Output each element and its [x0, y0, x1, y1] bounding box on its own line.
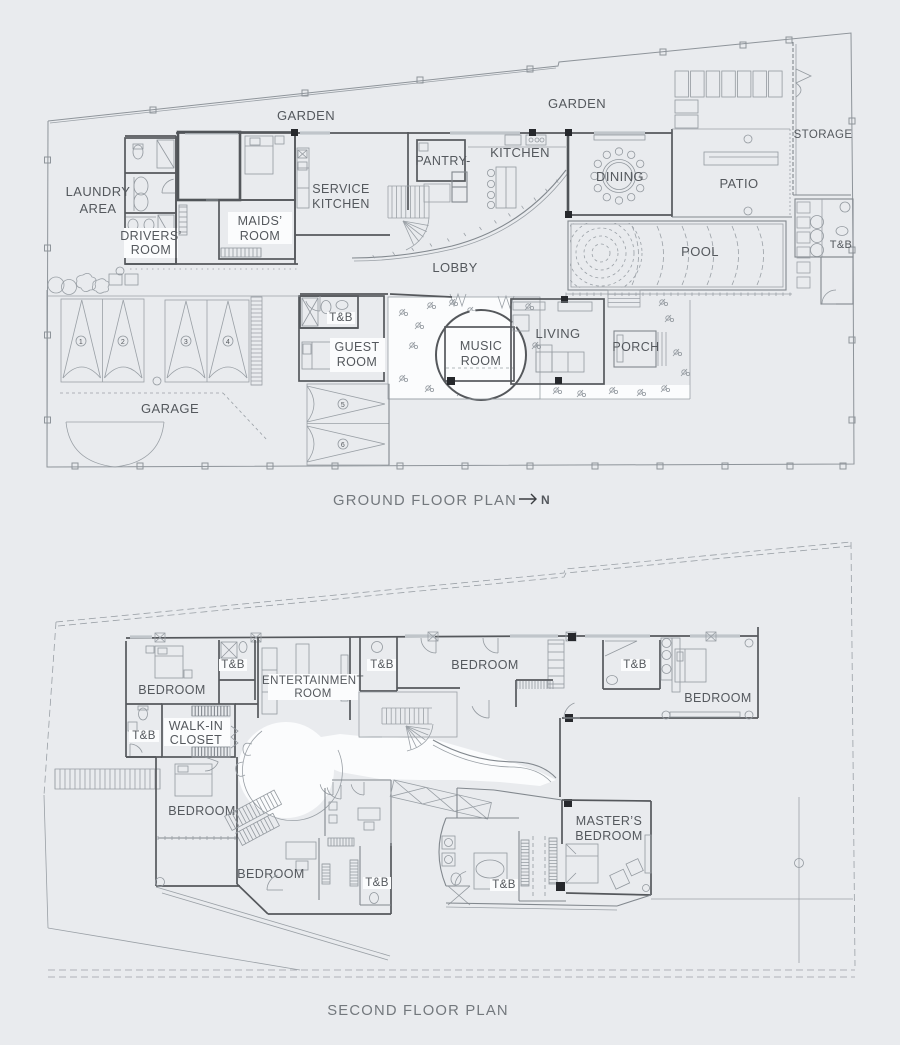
svg-text:CLOSET: CLOSET: [170, 733, 222, 747]
svg-text:WALK-IN: WALK-IN: [169, 719, 223, 733]
svg-text:6: 6: [341, 442, 345, 449]
svg-text:LIVING: LIVING: [535, 326, 580, 341]
svg-text:MUSIC: MUSIC: [460, 339, 502, 353]
svg-text:PATIO: PATIO: [719, 176, 758, 191]
svg-text:T&B: T&B: [221, 659, 245, 671]
svg-text:AREA: AREA: [79, 201, 116, 216]
svg-text:4: 4: [226, 339, 230, 346]
svg-text:3: 3: [184, 339, 188, 346]
svg-text:DRIVERS’: DRIVERS’: [120, 229, 182, 243]
svg-text:GARAGE: GARAGE: [141, 401, 199, 416]
svg-text:BEDROOM: BEDROOM: [138, 683, 205, 697]
svg-text:PORCH: PORCH: [612, 340, 659, 354]
svg-text:SERVICE: SERVICE: [312, 182, 369, 196]
svg-text:T&B: T&B: [132, 730, 156, 742]
svg-text:5: 5: [341, 402, 345, 409]
svg-text:MAIDS’: MAIDS’: [238, 214, 283, 228]
svg-text:N: N: [541, 493, 550, 507]
svg-text:LOBBY: LOBBY: [432, 260, 477, 275]
svg-text:ROOM: ROOM: [337, 355, 378, 369]
svg-text:ROOM: ROOM: [240, 229, 281, 243]
svg-text:1: 1: [79, 339, 83, 346]
svg-text:ROOM: ROOM: [131, 243, 172, 257]
svg-text:POOL: POOL: [681, 244, 719, 259]
svg-text:T&B: T&B: [623, 659, 647, 671]
svg-text:T&B: T&B: [830, 239, 853, 251]
svg-text:GARDEN: GARDEN: [548, 96, 606, 111]
svg-text:T&B: T&B: [492, 879, 516, 891]
svg-text:T&B: T&B: [329, 312, 353, 324]
svg-text:STORAGE: STORAGE: [794, 129, 853, 141]
svg-text:BEDROOM: BEDROOM: [451, 658, 518, 672]
svg-text:2: 2: [121, 339, 125, 346]
svg-text:KITCHEN: KITCHEN: [312, 197, 370, 211]
svg-text:LAUNDRY: LAUNDRY: [66, 184, 131, 199]
svg-text:PANTRY-: PANTRY-: [415, 154, 470, 168]
svg-text:BEDROOM: BEDROOM: [575, 829, 642, 843]
svg-text:SECOND FLOOR PLAN: SECOND FLOOR PLAN: [327, 1003, 509, 1019]
svg-text:ROOM: ROOM: [461, 354, 502, 368]
svg-text:BEDROOM: BEDROOM: [684, 691, 751, 705]
svg-text:GARDEN: GARDEN: [277, 108, 335, 123]
svg-text:ROOM: ROOM: [294, 688, 331, 700]
svg-text:GUEST: GUEST: [334, 340, 379, 354]
svg-text:T&B: T&B: [370, 659, 394, 671]
svg-text:MASTER’S: MASTER’S: [576, 814, 642, 828]
svg-text:ENTERTAINMENT: ENTERTAINMENT: [262, 675, 364, 687]
svg-text:T&B: T&B: [365, 877, 389, 889]
svg-text:DINING: DINING: [596, 169, 644, 184]
svg-text:GROUND FLOOR PLAN: GROUND FLOOR PLAN: [333, 493, 517, 509]
